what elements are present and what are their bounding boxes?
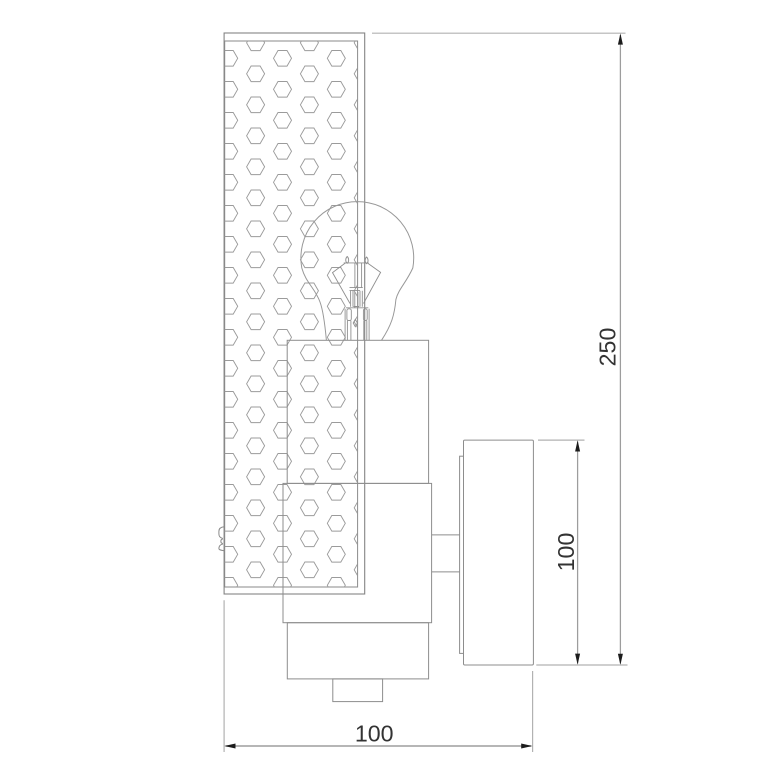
svg-text:100: 100 bbox=[355, 721, 394, 747]
svg-text:250: 250 bbox=[595, 328, 621, 367]
svg-text:100: 100 bbox=[553, 533, 579, 572]
